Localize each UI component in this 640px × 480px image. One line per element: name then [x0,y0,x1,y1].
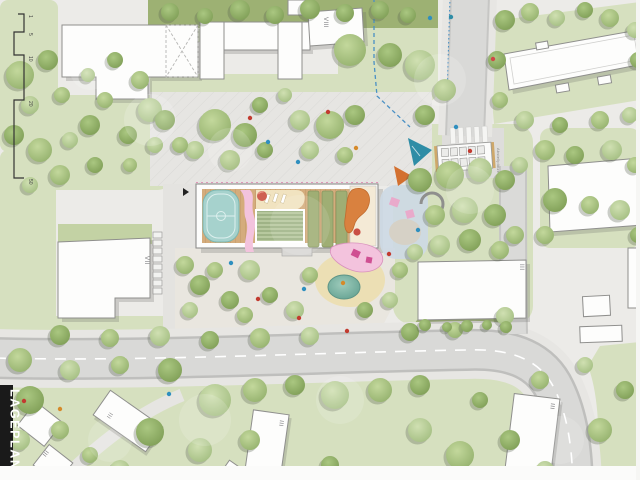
tree [577,2,593,18]
tree [622,107,638,123]
tree [482,320,492,330]
person-marker [468,149,472,153]
tree [97,92,113,108]
person-marker [491,57,495,61]
tree [419,319,431,331]
tree [62,132,78,148]
scale-tick-10: 10 [27,56,33,62]
tree [87,157,103,173]
tree [500,321,512,333]
tree [602,140,622,160]
tree [536,226,554,244]
tree [8,348,32,372]
storey-label-mid-right: III [518,264,524,271]
right-margin [636,0,640,480]
person-marker [354,146,358,150]
scale-tick-5: 5 [27,33,33,36]
tree [136,418,164,446]
person-marker [58,407,62,411]
tree [549,10,565,26]
scale-tick-1: 1 [27,15,33,18]
tree [182,302,198,318]
tree [286,301,304,319]
tree [488,51,506,69]
tree [495,170,515,190]
site-plan-sheet: VIII VII III III III III III [0,0,640,480]
tree [516,111,534,129]
tree [243,378,267,402]
tree [378,43,402,67]
person-marker [256,297,260,301]
person-marker [345,329,349,333]
tree [278,88,292,102]
tree [491,241,509,259]
tree [176,256,194,274]
scale-tick-20: 20 [27,101,33,107]
bottom-margin [0,466,640,480]
tree [262,287,278,303]
tree [500,430,520,450]
tree [158,358,182,382]
tree [371,1,389,19]
tree [301,141,319,159]
tree [101,329,119,347]
tree [221,291,239,309]
tree [316,111,344,139]
tree [240,430,260,450]
tree [401,323,419,341]
tree [334,34,366,66]
tree [50,165,70,185]
tree [240,260,260,280]
tree [459,229,481,251]
tree [250,328,270,348]
tree [266,6,284,24]
tree [357,302,373,318]
plan-canvas: VIII VII III III III III III [0,0,640,480]
tree [172,137,188,153]
tree [337,147,353,163]
tree [285,375,305,395]
tree [472,392,488,408]
tree [535,140,555,160]
tree [111,356,129,374]
tree [186,141,204,159]
tree [461,320,473,332]
tree [484,204,506,226]
person-marker [229,261,233,265]
tree [6,61,34,89]
tree [407,244,423,260]
tree [577,357,593,373]
tree [392,262,408,278]
tree [28,138,52,162]
tree [123,158,137,172]
roof-basketball-court [203,190,239,242]
tree [442,322,452,332]
person-marker [302,287,306,291]
tree [400,7,416,23]
tree [446,441,474,469]
tree [301,327,319,345]
tree [54,87,70,103]
sheet-label-strip: LAGEPLAN [0,385,22,480]
scale-tick-50: 50 [27,179,33,185]
person-marker [454,125,458,129]
person-marker [326,110,330,114]
tree [531,371,549,389]
tree [506,226,524,244]
person-marker [296,160,300,164]
sand-pit [389,219,421,245]
storey-label-bottom-center: III [277,420,284,427]
storey-label-mid-left: VII [143,256,149,265]
person-marker [167,392,171,396]
person-marker [341,281,345,285]
tree [257,142,273,158]
pond [328,275,360,299]
tree [51,421,69,439]
tree [50,325,70,345]
tree [408,418,432,442]
tree [161,3,179,21]
person-marker [248,116,252,120]
tree [616,381,634,399]
tree [601,9,619,27]
tree [425,205,445,225]
roof-slide-ball [353,228,360,235]
tree [207,262,223,278]
tree [610,200,630,220]
tree [566,146,584,164]
tree [197,8,213,24]
tree [345,105,365,125]
storey-label-top-center: VIII [322,17,328,28]
tree [581,196,599,214]
tree [588,418,612,442]
sheet-label: LAGEPLAN [8,389,22,471]
tree [410,375,430,395]
tree [252,97,268,113]
tree [591,111,609,129]
tree [512,157,528,173]
person-marker [449,15,453,19]
tree [60,360,80,380]
tree [408,168,432,192]
storey-label-bottom-right: III [548,403,555,410]
tree [237,307,253,323]
person-marker [428,16,432,20]
tree [302,267,318,283]
person-marker [297,316,301,320]
tree [80,115,100,135]
tree [230,0,250,20]
tree [382,292,398,308]
bike-parking-label: Abstellplätze [496,148,501,174]
tree [201,331,219,349]
person-marker [387,252,391,256]
tree [543,188,567,212]
tree [552,117,568,133]
tree [415,105,435,125]
tree [38,50,58,70]
tree [495,10,515,30]
tree [521,3,539,21]
tree [131,71,149,89]
tree [150,326,170,346]
tree [492,92,508,108]
tree [290,110,310,130]
tree [368,378,392,402]
tree [430,235,450,255]
tree [336,4,354,22]
person-marker [416,228,420,232]
person-marker [266,140,270,144]
